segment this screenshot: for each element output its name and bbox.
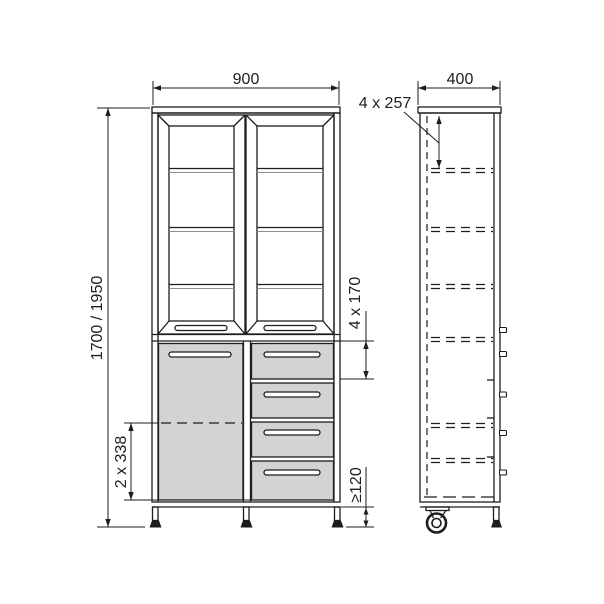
arrowhead (153, 85, 161, 90)
glass-door-left-pane (169, 126, 234, 321)
top-panel (152, 107, 340, 113)
dim-drawer-pitch-label: 4 x 170 (347, 277, 364, 330)
arrowhead (128, 423, 133, 431)
drawer-3-panel (252, 422, 334, 457)
adjustable-foot (332, 521, 344, 528)
leg (335, 507, 341, 521)
dim-shelf-spacing: 4 x 257 (359, 95, 442, 168)
adjustable-foot (150, 521, 162, 528)
mitre-line (234, 321, 245, 334)
mitre-line (158, 115, 169, 126)
drawer-2-handle (264, 392, 320, 397)
handle-knob (500, 328, 507, 333)
mitre-line (158, 321, 169, 334)
glass-door-left-handle (175, 326, 227, 331)
caster-wheel (426, 507, 449, 533)
mitre-line (234, 115, 245, 126)
drawer-4-handle (264, 470, 320, 475)
front-view (150, 107, 344, 528)
handle-knob (500, 470, 507, 475)
side-hidden-lines (424, 116, 494, 500)
arrowhead (363, 341, 368, 349)
handle-knob (500, 392, 507, 397)
arrowhead (364, 521, 369, 528)
adjustable-foot (491, 521, 502, 528)
glass-door-right (246, 115, 334, 334)
drawer-2-panel (252, 383, 334, 418)
arrowhead (436, 116, 441, 124)
arrowhead (363, 371, 368, 379)
glass-door-left (158, 115, 245, 334)
arrowhead (128, 492, 133, 500)
arrowhead (418, 85, 426, 90)
handle-knob (500, 431, 507, 436)
dim-front-height-label: 1700 / 1950 (89, 276, 106, 361)
adjustable-foot (241, 521, 253, 528)
glass-door-right-pane (257, 126, 323, 321)
dim-front-width-label: 900 (233, 71, 260, 88)
side-body-outline (420, 113, 500, 502)
drawer-4-panel (252, 461, 334, 500)
arrowhead (364, 508, 369, 515)
leg (494, 507, 500, 521)
arrowhead (436, 160, 441, 168)
dim-drawer-pitch: 4 x 170 (340, 277, 374, 379)
mitre-line (323, 321, 334, 334)
dim-side-depth-label: 400 (447, 71, 474, 88)
mitre-line (246, 115, 257, 126)
glass-door-right-handle (264, 326, 316, 331)
side-drawer-ticks (487, 380, 494, 457)
arrowhead (105, 519, 110, 527)
dim-ground-clearance: ≥120 (341, 467, 374, 527)
dim-shelf-spacing-label: 4 x 257 (359, 95, 412, 112)
side-top-panel (418, 107, 501, 113)
drawer-1-handle (264, 352, 320, 357)
glass-door-left-outer (158, 115, 245, 334)
drawer-1-panel (252, 344, 334, 380)
leg (153, 507, 159, 521)
drawing-canvas: 900 400 1700 / 1950 4 x 257 (0, 0, 604, 604)
caster-tyre (427, 514, 446, 533)
mitre-line (323, 115, 334, 126)
dim-door-shelf-pitch-label: 2 x 338 (113, 436, 130, 489)
caster-hub (432, 519, 441, 528)
dim-front-width: 900 (153, 71, 339, 105)
leg (244, 507, 250, 521)
dim-ground-clearance-label: ≥120 (348, 467, 365, 503)
cabinet-technical-drawing: 900 400 1700 / 1950 4 x 257 (0, 0, 604, 604)
dim-side-depth: 400 (418, 71, 500, 105)
arrowhead (331, 85, 339, 90)
lower-door-handle (169, 352, 231, 357)
drawer-3-handle (264, 430, 320, 435)
front-legs (150, 507, 344, 528)
glass-door-right-outer (246, 115, 334, 334)
handle-knob (500, 352, 507, 357)
arrowhead (492, 85, 500, 90)
lower-door-panel (159, 344, 244, 501)
caster-plate (426, 507, 449, 511)
arrowhead (105, 108, 110, 116)
leader-line (404, 112, 439, 143)
mitre-line (246, 321, 257, 334)
side-view (418, 107, 507, 533)
